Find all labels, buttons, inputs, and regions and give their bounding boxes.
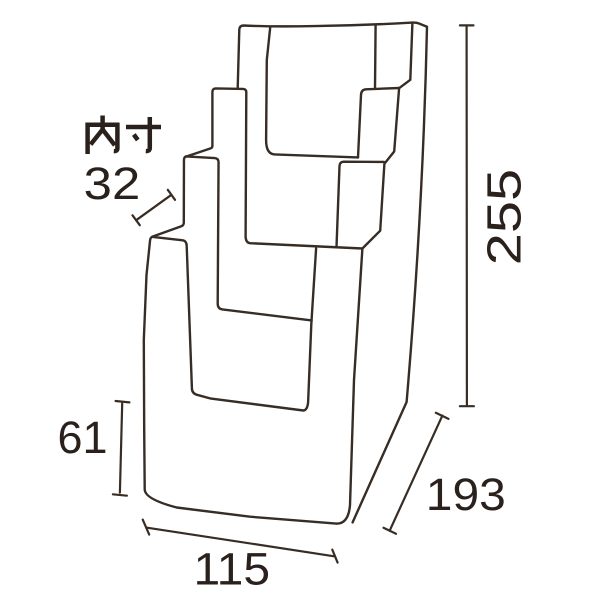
- svg-text:193: 193: [426, 469, 506, 520]
- svg-text:61: 61: [58, 412, 108, 463]
- svg-text:32: 32: [84, 158, 141, 209]
- svg-text:255: 255: [478, 169, 532, 266]
- svg-text:115: 115: [194, 544, 271, 595]
